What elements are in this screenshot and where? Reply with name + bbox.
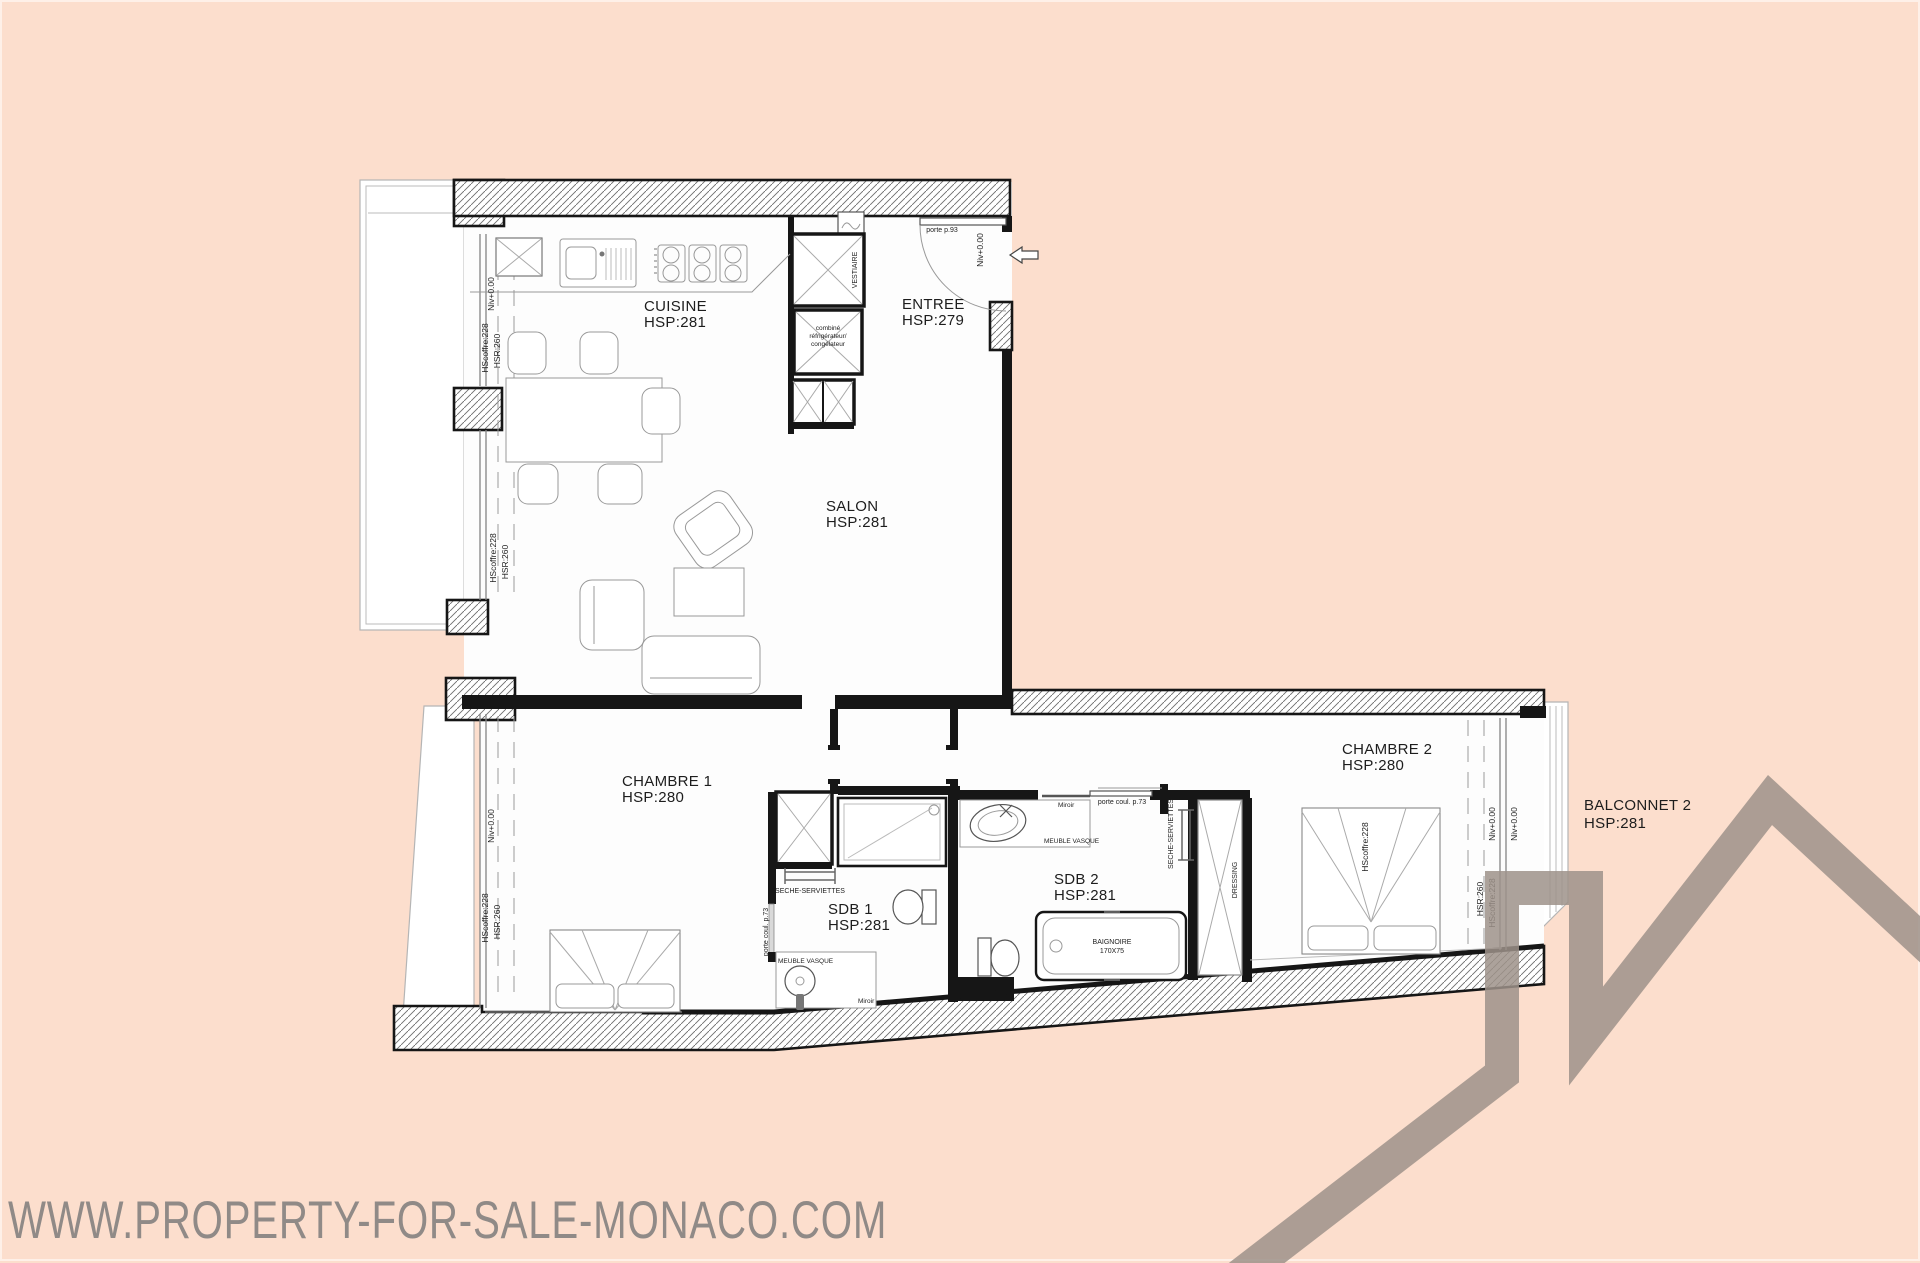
wall-sdb1-sdb2 [948, 790, 958, 1002]
closet-base [792, 422, 854, 429]
label-balconnet2-hsp: HSP:281 [1584, 815, 1646, 832]
watermark-url: WWW.PROPERTY-FOR-SALE-MONACO.COM [8, 1190, 887, 1251]
label-entree-hsp: HSP:279 [902, 312, 964, 329]
label-hscoffre-bed2: HScoffre:228 [1360, 822, 1370, 872]
label-miroir-1: Miroir [858, 998, 875, 1005]
label-entree: ENTREE [902, 296, 965, 313]
label-fridge-2: réfrigérateur/ [809, 333, 846, 340]
label-hsr-2: HSR:260 [500, 544, 510, 579]
wall-sdb1-north [838, 786, 960, 795]
label-cuisine-hsp: HSP:281 [644, 314, 706, 331]
label-seche-serviettes-1: SECHE-SERVIETTES [775, 888, 845, 895]
wall-right-salon [1002, 350, 1012, 695]
wall-pier-left-low [447, 600, 488, 634]
wall-sdb2-north-a [958, 790, 1038, 800]
label-balconnet2: BALCONNET 2 [1584, 797, 1691, 814]
label-hsr-ch2: HSR:260 [1475, 881, 1485, 916]
label-meuble-vasque-2: MEUBLE VASQUE [1044, 838, 1100, 845]
wall-mid-right [835, 695, 1012, 709]
label-hscoffre-2: HScoffre:228 [488, 533, 498, 583]
sink-faucet-icon [600, 252, 605, 257]
wall-pier-left-mid [454, 388, 502, 430]
label-cuisine: CUISINE [644, 298, 707, 315]
label-porte-coul-1: porte coul. p.73 [763, 908, 770, 956]
wall-dressing-right [1242, 798, 1252, 982]
label-sdb1: SDB 1 [828, 901, 873, 918]
bed-1-pillow [556, 984, 614, 1008]
floorplan-drawing: CUISINE HSP:281 ENTREE HSP:279 SALON HSP… [2, 2, 1920, 1263]
sliding-door-sdb2 [1090, 791, 1152, 796]
label-miroir-2: Miroir [1058, 802, 1075, 809]
label-seche-serviettes-2: SECHE-SERVIETTES [1168, 799, 1175, 869]
label-sdb1-hsp: HSP:281 [828, 917, 890, 934]
label-niv-ch2b: Niv+0.00 [1509, 807, 1519, 841]
bathtub [1036, 912, 1186, 980]
door-jamb-ch1-bot [828, 779, 840, 784]
label-niv-entree: Niv+0.00 [975, 233, 985, 267]
label-hscoffre-ch1: HScoffre:228 [480, 893, 490, 943]
dining-chair [518, 464, 558, 504]
label-baignoire-dim: 170X75 [1100, 948, 1124, 955]
wall-mid-left [462, 695, 802, 709]
dining-chair [508, 332, 546, 374]
door-jamb-hall-top [946, 745, 958, 750]
label-salon-hsp: HSP:281 [826, 514, 888, 531]
label-hsr-1: HSR:260 [492, 333, 502, 368]
wall-top [454, 180, 1010, 216]
dining-chair [642, 388, 680, 434]
label-chambre1-hsp: HSP:280 [622, 789, 684, 806]
entry-arrow-icon [1010, 247, 1038, 263]
ch1-wardrobe-base [776, 862, 832, 869]
entry-door-leaf [920, 218, 1006, 225]
label-baignoire: BAIGNOIRE [1093, 939, 1132, 946]
label-porte-coul-2: porte coul. p.73 [1098, 799, 1146, 806]
toilet-sdb1 [893, 890, 936, 924]
label-sdb2: SDB 2 [1054, 871, 1099, 888]
bed-1-pillow [618, 984, 674, 1008]
bed-2-pillow [1308, 926, 1368, 950]
label-porte-entree: porte p.93 [926, 227, 958, 234]
floorplan-sheet: CUISINE HSP:281 ENTREE HSP:279 SALON HSP… [0, 0, 1920, 1261]
kitchen-sink [560, 239, 636, 287]
wall-hall-sdb-a [950, 709, 958, 747]
label-hsr-ch1: HSR:260 [492, 904, 502, 939]
label-niv-left: Niv+0.00 [486, 277, 496, 311]
label-chambre2-hsp: HSP:280 [1342, 757, 1404, 774]
dining-chair [598, 464, 642, 504]
label-hscoffre-1: HScoffre:228 [480, 323, 490, 373]
wall-top-lower-block [1012, 690, 1544, 714]
intercom-box [838, 212, 864, 234]
label-dressing: DRESSING [1232, 862, 1239, 899]
wall-pier-entree [990, 302, 1012, 350]
label-chambre2: CHAMBRE 2 [1342, 741, 1432, 758]
vanity-tap-icon [796, 994, 804, 1010]
label-sdb2-hsp: HSP:281 [1054, 887, 1116, 904]
toilet-sdb2 [978, 938, 1019, 976]
door-jamb-hall-bot [946, 779, 958, 784]
wall-balconnet-corner [1520, 706, 1546, 718]
dining-chair [580, 332, 618, 374]
wall-hall-ch1-a [830, 709, 838, 747]
label-meuble-vasque-1: MEUBLE VASQUE [778, 958, 834, 965]
label-fridge-1: combiné [816, 325, 841, 332]
label-salon: SALON [826, 498, 878, 515]
door-jamb-ch1-top [828, 745, 840, 750]
label-chambre1: CHAMBRE 1 [622, 773, 712, 790]
dining-table [506, 378, 662, 462]
label-vestiaire: VESTIAIRE [852, 251, 859, 288]
coffee-table [674, 568, 744, 616]
label-niv-ch2a: Niv+0.00 [1487, 807, 1497, 841]
label-fridge-3: congélateur [811, 341, 846, 348]
sofa [642, 636, 760, 694]
loveseat [580, 580, 644, 650]
label-niv-ch1: Niv+0.00 [486, 809, 496, 843]
balcony-lower-left [402, 706, 474, 1046]
bed-2-pillow [1374, 926, 1436, 950]
